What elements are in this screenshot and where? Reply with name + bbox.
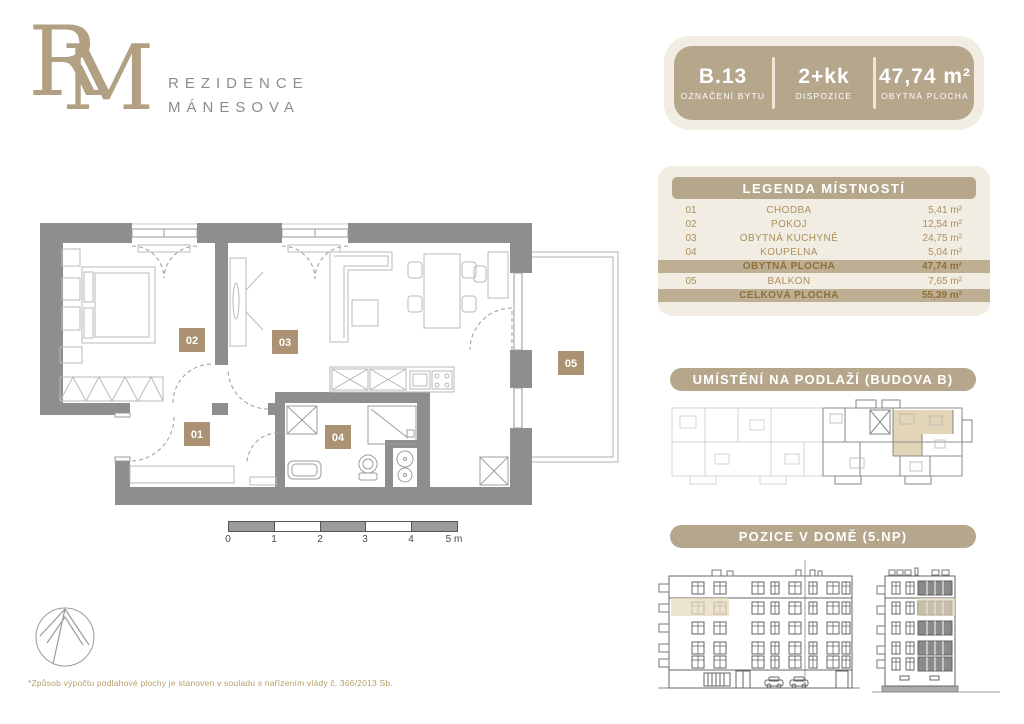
nightstand [62,278,80,300]
row-area: 12,54 m² [854,219,990,230]
row-name: CELKOVÁ PLOCHA [724,290,854,301]
footnote: *Způsob výpočtu podlahové plochy je stan… [28,678,393,688]
scale-segment [274,522,321,531]
legend-total-row: CELKOVÁ PLOCHA 55,39 m² [658,289,990,302]
row-no: 04 [658,247,724,258]
front-elevation [658,560,860,688]
brand-logo: R M REZIDENCE MÁNESOVA [28,14,388,134]
unit-id-label: OZNAČENÍ BYTU [674,91,772,101]
room-label-05: 05 [558,351,584,375]
radiator [138,245,190,252]
side-highlight-band [918,598,955,616]
hall-bench [130,466,234,483]
nightstand [60,347,82,363]
highlighted-apartment [893,410,953,456]
unit-area-value: 47,74 m² [876,66,974,88]
unit-info-card-inner: B.13 OZNAČENÍ BYTU 2+kk DISPOZICE 47,74 … [674,46,974,120]
toilet [359,455,377,480]
front-highlight-band [671,598,729,616]
nightstand [62,307,80,330]
scale-segment [229,522,274,531]
washing-machine [287,406,317,434]
unit-layout-label: DISPOZICE [775,91,873,101]
north-arrow-icon [33,603,97,669]
row-name: POKOJ [724,219,854,230]
wardrobe [60,377,163,401]
unit-id-value: B.13 [674,66,772,88]
windows [115,224,522,461]
boiler [397,451,413,482]
unit-area-label: OBYTNÁ PLOCHA [876,91,974,101]
dining-table [408,254,476,328]
side-elevation [872,568,1000,692]
svg-text:04: 04 [332,432,345,444]
faded-building-half [672,408,823,484]
svg-text:01: 01 [191,429,203,441]
scale-tick: 0 [225,534,231,545]
sink [288,461,321,479]
hall-mat [250,477,276,485]
section-bar-floor-location: UMÍSTĚNÍ NA PODLAŽÍ (BUDOVA B) [670,368,976,391]
svg-text:03: 03 [279,337,291,349]
desk-and-chair [474,252,508,298]
unit-layout-value: 2+kk [775,66,873,88]
shaft-hatch [480,457,508,485]
floor-plan: 02 03 01 04 05 [30,195,630,515]
scale-bar [228,521,458,532]
legend-row-03: 03 OBYTNÁ KUCHYNĚ 24,75 m² [658,232,990,246]
svg-text:02: 02 [186,335,198,347]
row-name: OBYTNÁ KUCHYNĚ [724,233,854,244]
row-name: KOUPELNA [724,247,854,258]
scale-segment [321,522,366,531]
row-no: 02 [658,219,724,230]
tv-unit [230,258,263,346]
row-no: 03 [658,233,724,244]
row-name: OBYTNÁ PLOCHA [724,261,854,272]
section-bar-house-position: POZICE V DOMĚ (5.NP) [670,525,976,548]
logo-line-2: MÁNESOVA [168,96,309,120]
legend-row-05: 05 BALKON 7,65 m² [658,274,990,288]
room-label-02: 02 [179,328,205,352]
legend-rows: 01 CHODBA 5,41 m² 02 POKOJ 12,54 m² 03 O… [658,204,990,303]
scale-tick: 4 [408,534,414,545]
room-label-03: 03 [272,330,298,354]
shower [368,406,416,444]
row-area: 55,39 m² [854,290,990,301]
row-no: 01 [658,205,724,216]
room-label-01: 01 [184,422,210,446]
scale-tick: 5 m [446,534,463,545]
floor-location-plan [660,394,990,500]
unit-id-cell: B.13 OZNAČENÍ BYTU [674,66,772,101]
row-area: 5,04 m² [854,247,990,258]
kitchen-counter [330,367,454,392]
scale-labels: 0 1 2 3 4 5 m [228,534,456,546]
row-name: BALKON [724,276,854,287]
legend-row-01: 01 CHODBA 5,41 m² [658,204,990,218]
unit-area-cell: 47,74 m² OBYTNÁ PLOCHA [876,66,974,101]
legend-row-02: 02 POKOJ 12,54 m² [658,218,990,232]
legend-row-04: 04 KOUPELNA 5,04 m² [658,245,990,259]
scale-tick: 2 [317,534,323,545]
row-name: CHODBA [724,205,854,216]
legend-subtotal-row: OBYTNÁ PLOCHA 47,74 m² [658,260,990,273]
logo-wordmark: REZIDENCE MÁNESOVA [168,72,309,120]
logo-line-1: REZIDENCE [168,72,309,96]
row-area: 5,41 m² [854,205,990,216]
room-legend-panel: LEGENDA MÍSTNOSTÍ 01 CHODBA 5,41 m² 02 P… [658,166,990,316]
row-area: 24,75 m² [854,233,990,244]
unit-info-card: B.13 OZNAČENÍ BYTU 2+kk DISPOZICE 47,74 … [664,36,984,130]
bed [82,267,155,343]
scale-segment [365,522,412,531]
row-area: 7,65 m² [854,276,990,287]
row-no: 05 [658,276,724,287]
svg-text:05: 05 [565,358,577,370]
brochure-page: R M REZIDENCE MÁNESOVA B.13 OZNAČENÍ BYT… [0,0,1024,724]
legend-title-bar: LEGENDA MÍSTNOSTÍ [672,177,976,199]
sofa [330,252,392,342]
scale-segment [412,522,457,531]
balcony-stubs [659,584,669,667]
unit-layout-cell: 2+kk DISPOZICE [775,66,873,101]
building-elevations [652,556,1004,714]
logo-monogram-m: M [62,34,154,124]
scale-tick: 1 [271,534,277,545]
row-area: 47,74 m² [854,261,990,272]
scale-tick: 3 [362,534,368,545]
nightstand [62,249,80,266]
walls [40,223,532,505]
room-label-04: 04 [325,425,351,449]
